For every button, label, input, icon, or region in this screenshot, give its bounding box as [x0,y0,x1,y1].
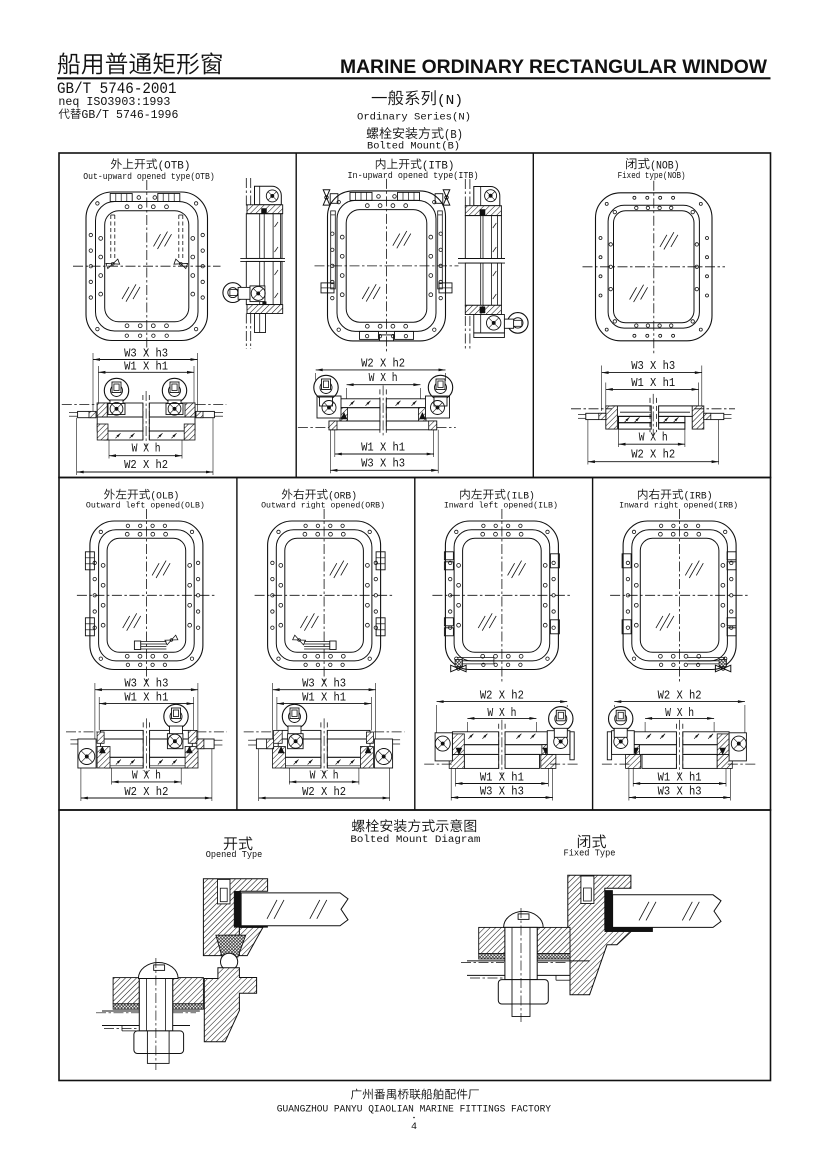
svg-text:Fixed type(NOB): Fixed type(NOB) [618,171,686,181]
svg-text:W3 X h3: W3 X h3 [480,784,524,798]
svg-text:W3 X h3: W3 X h3 [658,784,702,798]
svg-text:W2 X h2: W2 X h2 [361,356,405,370]
svg-text:4: 4 [411,1122,417,1133]
svg-text:Inward right opened(IRB): Inward right opened(IRB) [619,501,738,511]
svg-text:W3 X h3: W3 X h3 [631,359,675,373]
svg-text:W3 X h3: W3 X h3 [302,677,346,691]
svg-text:Opened Type: Opened Type [206,850,263,860]
svg-text:Outward left opened(OLB): Outward left opened(OLB) [86,501,205,511]
svg-text:Inward left opened(ILB): Inward left opened(ILB) [444,501,558,511]
svg-text:W2 X h2: W2 X h2 [658,688,702,702]
svg-text:MARINE ORDINARY RECTANGULAR WI: MARINE ORDINARY RECTANGULAR WINDOW [340,56,768,78]
svg-text:W1 X h1: W1 X h1 [124,359,168,373]
svg-text:W2 X h2: W2 X h2 [124,458,168,472]
svg-text:Bolted Mount(B): Bolted Mount(B) [367,140,460,152]
svg-text:(N): (N) [437,93,463,109]
svg-text:W2 X h2: W2 X h2 [480,688,524,702]
svg-text:In-upward opened type(ITB): In-upward opened type(ITB) [348,171,479,181]
svg-text:W1 X h1: W1 X h1 [302,691,346,705]
svg-text:W3 X h3: W3 X h3 [124,346,168,360]
svg-text:Fixed Type: Fixed Type [564,849,616,859]
svg-text:Out-upward opened type(OTB): Out-upward opened type(OTB) [83,172,214,182]
svg-text:GB/T 5746-1996: GB/T 5746-1996 [81,108,178,122]
svg-text:Ordinary Series(N): Ordinary Series(N) [357,112,471,124]
svg-text:Outward right opened(ORB): Outward right opened(ORB) [261,501,385,511]
svg-text:W X h: W X h [310,769,339,783]
svg-text:GUANGZHOU PANYU QIAOLIAN MARIN: GUANGZHOU PANYU QIAOLIAN MARINE FITTINGS… [277,1105,551,1116]
svg-text:W X h: W X h [132,769,161,783]
svg-text:W1 X h1: W1 X h1 [361,441,405,455]
svg-text:W2 X h2: W2 X h2 [631,448,675,462]
svg-text:W1 X h1: W1 X h1 [631,376,675,390]
svg-text:W3 X h3: W3 X h3 [124,677,168,691]
svg-text:(OTB): (OTB) [158,160,191,172]
svg-text:W1 X h1: W1 X h1 [124,691,168,705]
svg-text:W X h: W X h [369,371,398,385]
svg-text:W2 X h2: W2 X h2 [124,785,168,799]
svg-text:W2 X h2: W2 X h2 [302,785,346,799]
svg-text:W3 X h3: W3 X h3 [361,457,405,471]
svg-text:Bolted Mount Diagram: Bolted Mount Diagram [350,834,480,846]
